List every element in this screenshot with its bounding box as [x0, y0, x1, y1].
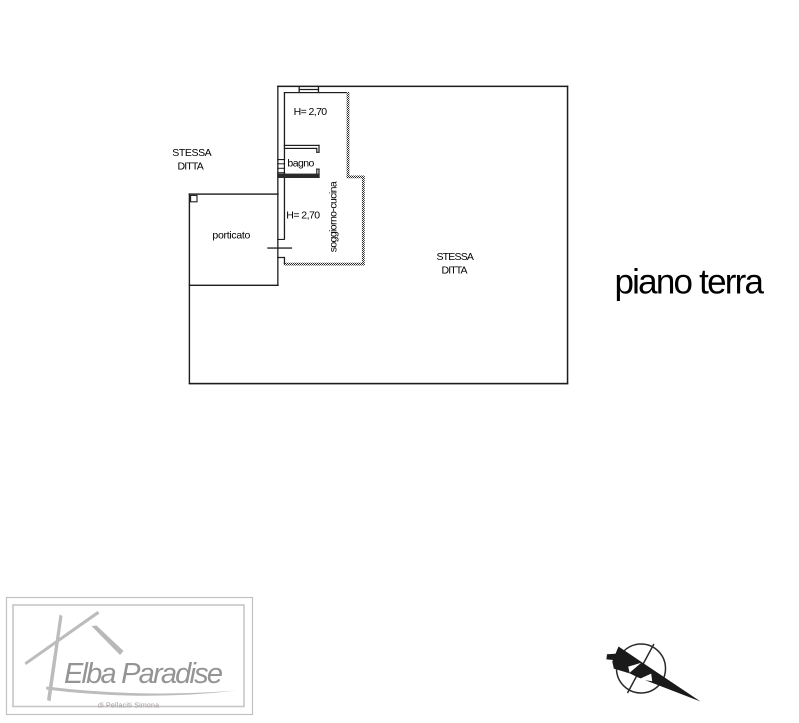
svg-text:H= 2,70: H= 2,70: [294, 106, 328, 118]
svg-text:STESSA: STESSA: [172, 147, 211, 159]
svg-text:Elba Paradise: Elba Paradise: [64, 658, 223, 690]
svg-text:DITTA: DITTA: [442, 265, 468, 277]
svg-text:bagno: bagno: [287, 158, 314, 170]
svg-text:STESSA: STESSA: [436, 251, 474, 263]
svg-text:H= 2,70: H= 2,70: [286, 209, 320, 221]
svg-text:DITTA: DITTA: [177, 160, 203, 172]
svg-text:porticato: porticato: [212, 230, 250, 242]
svg-text:soggiorno-cucina: soggiorno-cucina: [328, 181, 340, 252]
svg-text:di Pellaciti Simona: di Pellaciti Simona: [98, 703, 159, 710]
svg-text:piano terra: piano terra: [615, 263, 765, 302]
